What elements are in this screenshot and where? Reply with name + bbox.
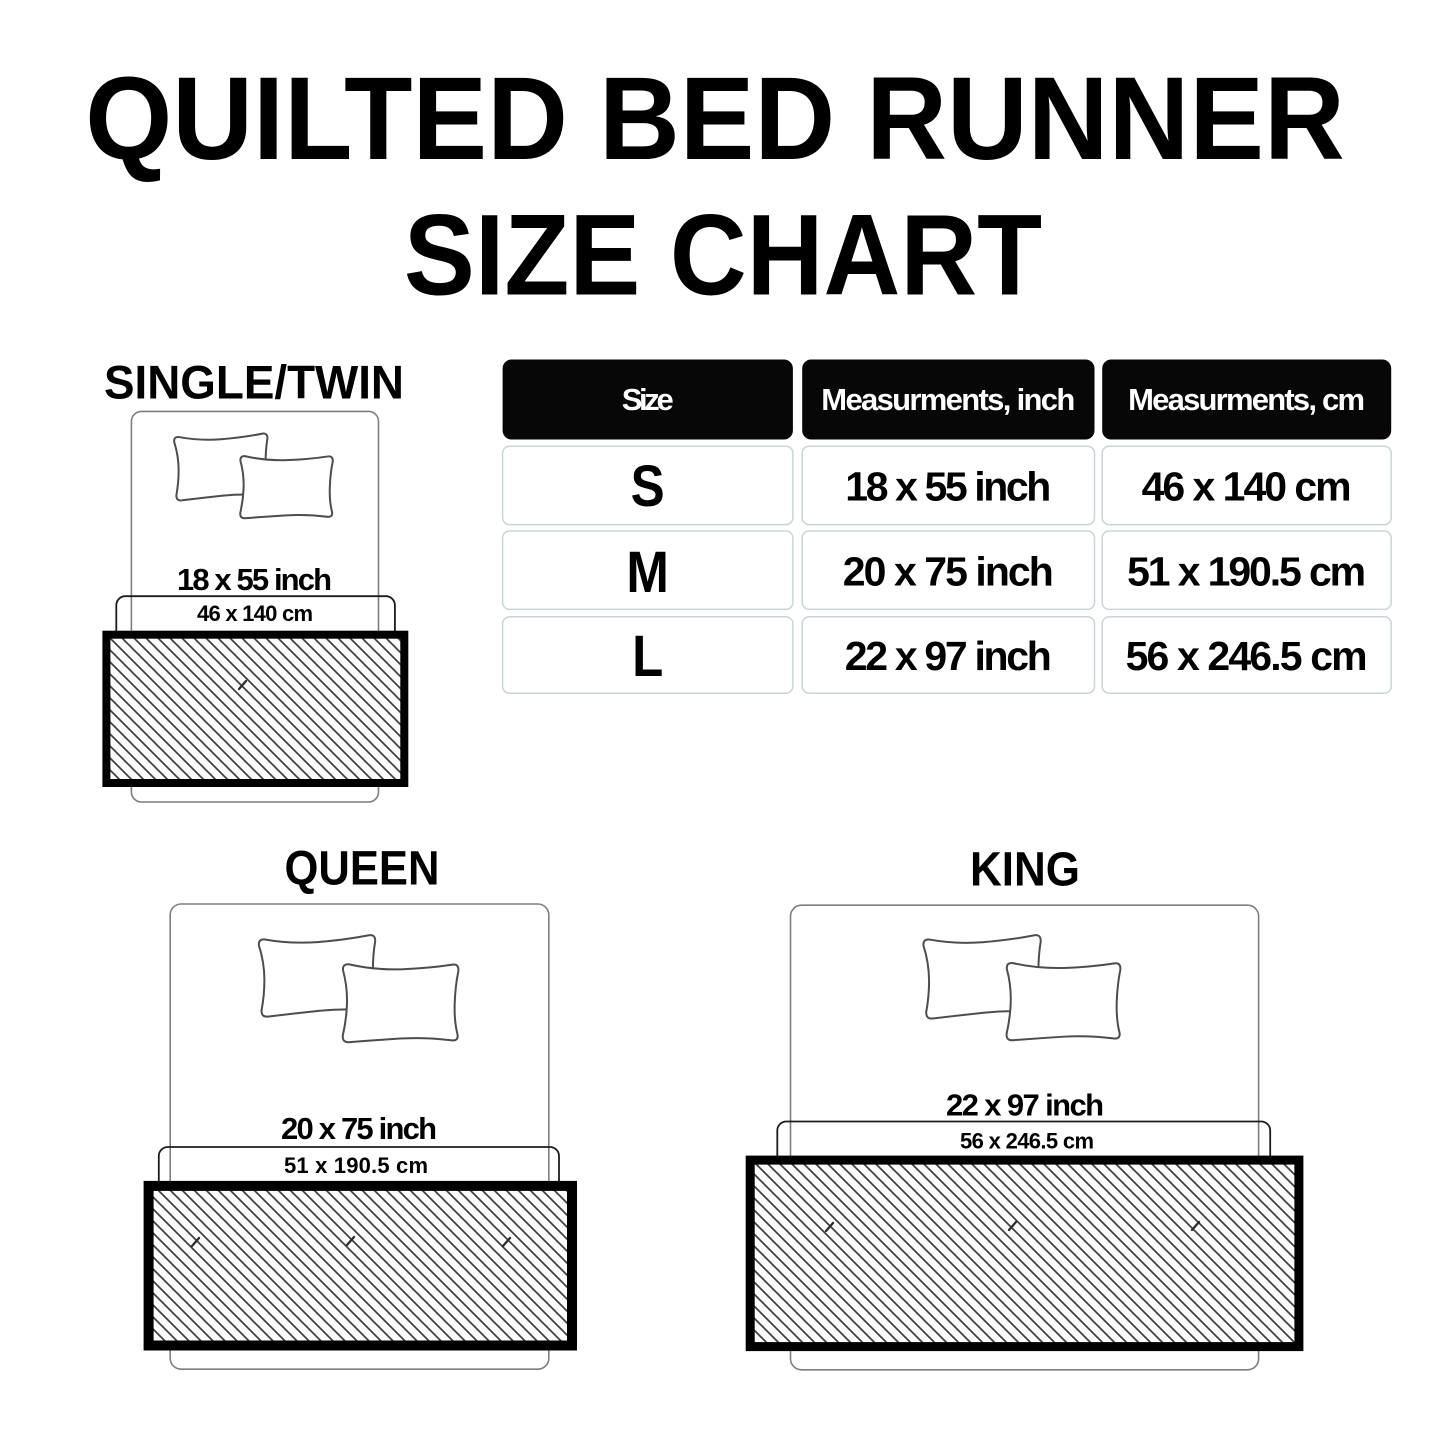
- svg-text:M: M: [626, 540, 669, 605]
- svg-text:51 x 190.5 cm: 51 x 190.5 cm: [284, 1153, 428, 1178]
- svg-text:L: L: [632, 624, 663, 689]
- svg-text:Size: Size: [622, 382, 674, 417]
- svg-text:56 x 246.5 cm: 56 x 246.5 cm: [960, 1129, 1094, 1154]
- svg-text:18 x 55 inch: 18 x 55 inch: [845, 464, 1051, 510]
- svg-text:22 x 97 inch: 22 x 97 inch: [845, 633, 1052, 679]
- svg-text:22 x 97 inch: 22 x 97 inch: [946, 1087, 1104, 1122]
- svg-text:S: S: [631, 454, 665, 519]
- svg-text:SIZE CHART: SIZE CHART: [404, 192, 1042, 320]
- svg-text:KING: KING: [970, 842, 1080, 896]
- svg-text:46 x 140 cm: 46 x 140 cm: [1142, 464, 1352, 510]
- svg-text:20 x 75 inch: 20 x 75 inch: [843, 549, 1054, 595]
- svg-text:Measurments, cm: Measurments, cm: [1128, 382, 1365, 417]
- svg-text:QUILTED BED RUNNER: QUILTED BED RUNNER: [85, 53, 1344, 184]
- svg-text:56 x 246.5 cm: 56 x 246.5 cm: [1126, 633, 1368, 679]
- svg-text:20 x 75 inch: 20 x 75 inch: [281, 1111, 437, 1146]
- svg-text:SINGLE/TWIN: SINGLE/TWIN: [104, 356, 404, 409]
- svg-text:51 x 190.5 cm: 51 x 190.5 cm: [1127, 549, 1366, 595]
- svg-text:Measurments, inch: Measurments, inch: [821, 382, 1075, 417]
- svg-text:QUEEN: QUEEN: [285, 842, 440, 895]
- svg-text:18 x 55 inch: 18 x 55 inch: [177, 562, 332, 597]
- svg-text:46 x 140 cm: 46 x 140 cm: [197, 601, 313, 626]
